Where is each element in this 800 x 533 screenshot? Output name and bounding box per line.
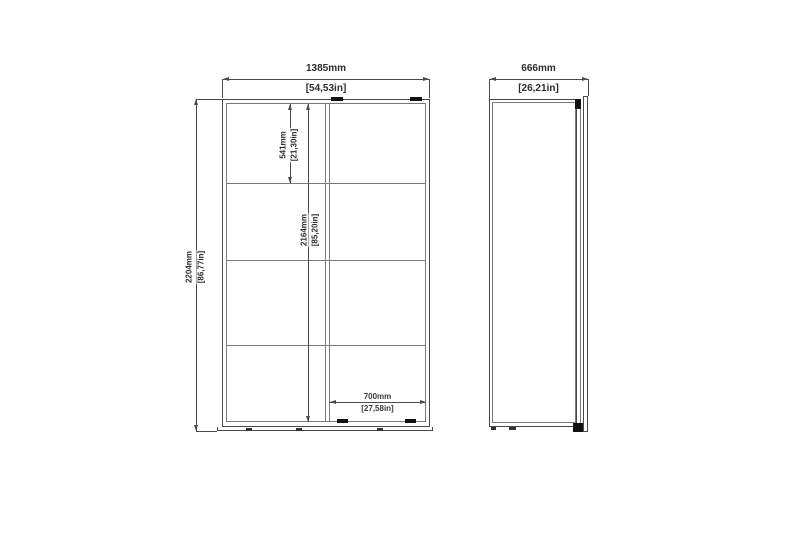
dim-inner-height-line — [308, 104, 309, 422]
dim-front-width-line — [222, 79, 430, 80]
dim-side-depth-arrow-right — [582, 77, 588, 81]
dim-inner-height-in: [85,20in] — [311, 213, 320, 247]
front-door-divider-left — [325, 104, 326, 422]
side-door-inner-line — [580, 103, 581, 425]
dim-top-section-in: [21,30in] — [290, 128, 299, 162]
front-inner-frame — [226, 103, 426, 422]
front-panel-line-1 — [227, 183, 425, 184]
dim-front-height-arrow-bottom — [194, 425, 198, 431]
front-foot-1 — [246, 428, 252, 431]
dim-front-height-arrow-top — [194, 99, 198, 105]
dim-side-depth-ext-right — [588, 79, 589, 96]
front-panel-line-3 — [227, 345, 425, 346]
dim-door-width-in: [27,58in] — [329, 404, 426, 413]
dim-front-height-ext-top — [196, 99, 222, 100]
dim-inner-height-arrow-top — [306, 104, 310, 110]
dim-front-width-arrow-right — [423, 77, 429, 81]
dim-side-depth-line — [489, 79, 588, 80]
front-foot-3 — [377, 428, 383, 431]
side-top-bracket — [575, 99, 581, 109]
dim-door-width-mm: 700mm — [329, 392, 426, 401]
dim-top-section-mm: 541mm — [279, 130, 288, 160]
front-top-roller-left — [331, 97, 343, 101]
dim-inner-height-arrow-bottom — [306, 416, 310, 422]
dim-front-height-mm: 2204mm — [185, 250, 194, 284]
front-top-roller-right — [410, 97, 422, 101]
dim-side-depth-arrow-left — [490, 77, 496, 81]
dim-front-height-in: [86,77in] — [197, 250, 206, 284]
front-panel-line-2 — [227, 260, 425, 261]
front-bottom-roller-right — [405, 419, 416, 423]
dim-front-width-in: [54,53in] — [222, 83, 430, 94]
side-inner-frame — [492, 102, 576, 423]
dim-top-section-arrow-bottom — [288, 177, 292, 183]
dim-front-height-ext-bottom — [196, 431, 217, 432]
side-bottom-bracket — [573, 423, 583, 432]
dim-side-depth-mm: 666mm — [489, 63, 588, 74]
side-foot-2 — [509, 427, 516, 430]
front-door-divider-right — [329, 104, 330, 422]
dim-front-width-arrow-left — [223, 77, 229, 81]
dim-side-depth-in: [26,21in] — [489, 83, 588, 94]
dim-door-width-line — [329, 402, 426, 403]
drawing-canvas: 1385mm [54,53in] 2204mm [86,77in] 541mm … — [0, 0, 800, 533]
dim-front-width-mm: 1385mm — [222, 63, 430, 74]
front-foot-2 — [296, 428, 302, 431]
front-bottom-roller-left — [337, 419, 348, 423]
side-door-panel — [583, 96, 588, 432]
side-foot-1 — [491, 427, 496, 430]
dim-inner-height-mm: 2164mm — [300, 213, 309, 247]
dim-top-section-arrow-top — [288, 104, 292, 110]
